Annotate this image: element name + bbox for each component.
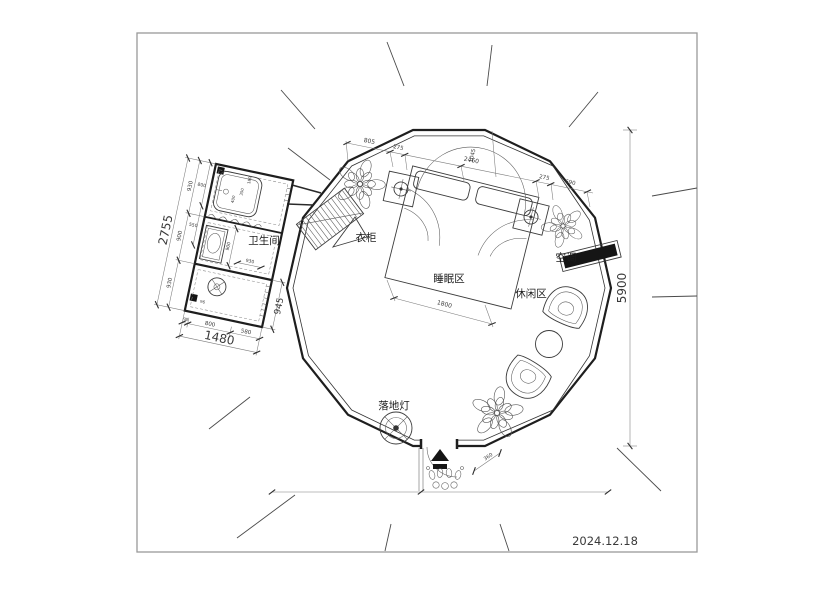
entrance-arrow — [431, 449, 449, 469]
dim-label: 400 — [230, 195, 237, 204]
dim-label: 900 — [225, 241, 233, 251]
lounge-chair-top — [540, 280, 594, 331]
label-leisure-area: 休闲区 — [515, 287, 547, 300]
dim-label: 800 — [197, 182, 207, 190]
bathroom-corridor-wall — [292, 185, 321, 193]
room-outline — [287, 130, 611, 491]
lounge-chair-bottom — [498, 352, 554, 406]
dim-label: 275 — [538, 174, 550, 182]
plant-bottom — [461, 378, 533, 449]
dim-label: 275 — [392, 144, 404, 152]
label-wardrobe: 衣柜 — [356, 231, 377, 244]
floor-drain-symbol — [206, 276, 227, 297]
dim-label: 1800 — [436, 299, 453, 310]
bathtub — [212, 170, 263, 218]
bathroom-corridor-wall — [287, 204, 313, 205]
floor-plan-page: 800 550 930 900 930 2755 98 800 580 1480 — [0, 0, 837, 592]
dim-label: 350 — [238, 187, 245, 196]
dim-overall-diameter: 5900 — [615, 127, 637, 449]
dim-label: 805 — [363, 137, 376, 146]
wall-column — [190, 294, 198, 302]
dim-label-total-height: 2755 — [156, 214, 176, 247]
dim-bottom-line — [269, 490, 611, 495]
dim-entrance-width: 360 — [470, 449, 504, 475]
label-sleeping-area: 睡眠区 — [433, 272, 465, 285]
round-table — [536, 331, 563, 358]
bathroom-door-hatch — [260, 188, 291, 316]
dim-label: 945 — [273, 297, 286, 316]
floor-lamp-symbol — [380, 412, 412, 444]
date-label: 2024.12.18 — [572, 534, 638, 548]
label-bathroom: 卫生间 — [248, 234, 280, 247]
dim-label: 5900 — [615, 273, 629, 304]
washbasin — [199, 225, 228, 263]
label-floor-lamp: 落地灯 — [378, 399, 410, 412]
nightstand-left — [383, 171, 419, 207]
entrance-door-swing-arc — [427, 447, 457, 477]
dim-bed-width: 1800 — [387, 280, 496, 327]
dim-label: 550 — [188, 222, 198, 230]
pillow-left — [412, 170, 471, 201]
drawing-border-frame — [137, 33, 697, 552]
label-air-conditioner: 空调 — [556, 251, 577, 264]
dim-label: 96 — [200, 299, 206, 305]
bathroom-dimensions: 800 550 930 900 930 2755 98 800 580 1480 — [137, 152, 311, 359]
dim-label: 180 — [246, 176, 253, 185]
floor-plan-drawing: 800 550 930 900 930 2755 98 800 580 1480 — [0, 0, 837, 592]
shoes-at-entrance — [427, 467, 464, 490]
bathroom-block: 800 550 930 900 930 2755 98 800 580 1480 — [137, 152, 311, 359]
